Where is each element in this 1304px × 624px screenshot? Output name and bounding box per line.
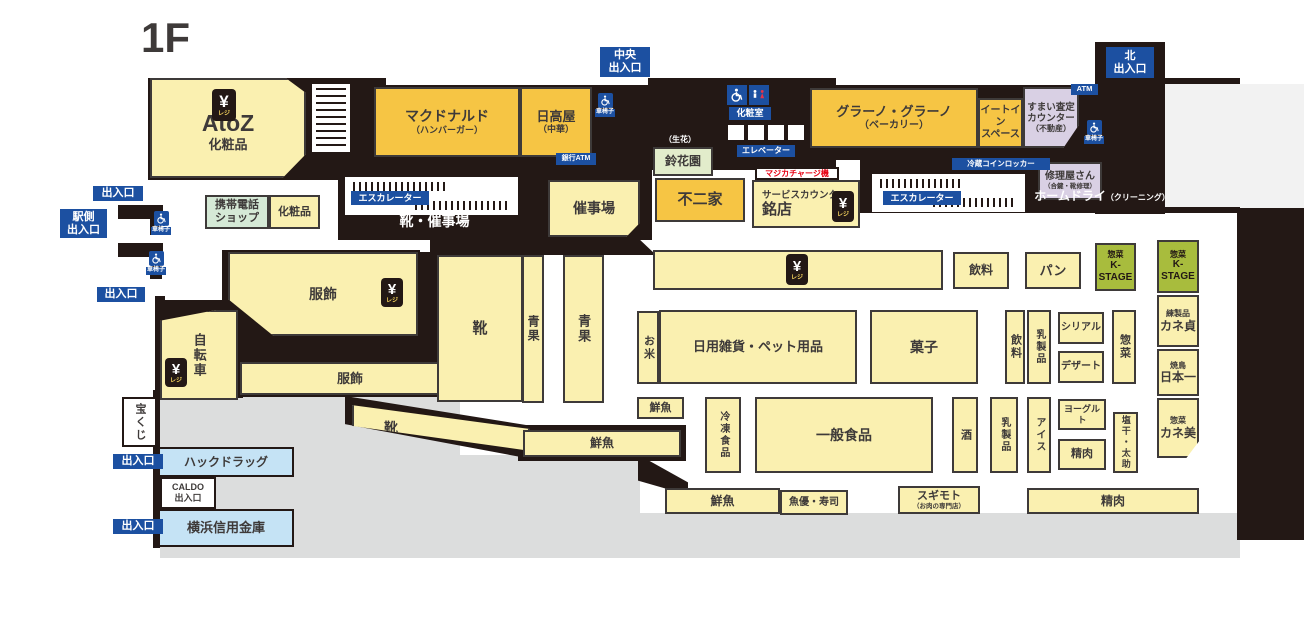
eat-in-space: イートイン スペース [978,98,1023,148]
exit-central: 中央 出入口 [600,47,650,77]
shop-sugimoto-label: スギモト [917,490,961,503]
exit-west-4-label: 出入口 [122,520,155,533]
dept-sengyo-small-label: 鮮魚 [650,402,672,415]
dept-seika-2: 青果 [563,255,604,403]
exit-north: 北 出入口 [1106,47,1154,78]
dept-kashi: 菓子 [870,310,978,384]
shop-kstage-small-label: K-STAGE [1097,260,1134,284]
dept-zakka-pet: 日用雑貨・ペット用品 [659,310,857,384]
dept-ippan-foods: 一般食品 [755,397,933,473]
shop-hac-drug-label: ハックドラッグ [184,455,268,469]
dept-frozen: 冷凍食品 [705,397,741,473]
restroom-label: 化粧室 [729,107,771,120]
dept-sake: 酒 [952,397,978,473]
shop-nihonichi: 焼鳥日本一 [1157,349,1199,396]
dept-ice: アイス [1027,397,1051,473]
atm-label: ATM [1071,84,1098,95]
wheelchair-icon: 車椅子 [1082,120,1106,144]
dept-sozai-v-label: 惣菜 [1118,334,1131,360]
floor-map-1f: 1F 車椅子 [0,0,1304,624]
restroom-icons [727,85,769,105]
seika-note-label: （生花） [664,135,696,144]
dept-cosmetics: 化粧品 [269,195,320,229]
exit-station-side-label: 駅側 出入口 [67,211,100,237]
shop-hac-drug: ハックドラッグ [158,447,294,477]
exit-west-1-label: 出入口 [102,187,135,200]
shop-suzukaen-label: 鈴花園 [665,154,701,168]
dept-drinks-2-label: 飲料 [1009,334,1022,360]
escalator-label-right-label: エスカレーター [890,193,953,204]
shop-shuriyasan-label: 修理屋さん [1045,171,1095,183]
dept-seiniku-small: 精肉 [1058,439,1106,470]
dept-dairy-2-label: 乳製品 [998,417,1010,453]
dept-bread: パン [1025,252,1081,289]
dept-fukushoku-upper-label: 服飾 [309,286,337,303]
majica-charge-label-label: マジカチャージ機 [765,169,829,178]
elevator-label-label: エレベーター [742,146,790,155]
dept-ice-label: アイス [1033,417,1045,453]
shop-suzukaen: 鈴花園 [653,147,713,176]
shop-hidakaya-sub: （中華） [538,124,574,135]
home-dry-label: ホームドライ（クリーニング） [1036,189,1168,206]
shop-kstage-small: 惣菜K-STAGE [1095,243,1136,291]
shop-yokohama-shinkin-label: 横浜信用金庫 [187,520,265,535]
shop-mcdonalds-label: マクドナルド [405,108,489,125]
event-hall-label: 催事場 [573,200,615,217]
wall-east-band [1237,208,1304,540]
majica-charge-label: マジカチャージ機 [755,167,839,180]
wheelchair-icon: 車椅子 [593,93,617,117]
wheelchair-icon: 車椅子 [149,211,173,235]
dept-fukushoku-lower: 服飾 [240,362,460,395]
shop-grano-grano-sub: （ベーカリー） [859,120,929,132]
exit-north-label: 北 出入口 [1114,50,1147,76]
exit-central-label: 中央 出入口 [609,49,642,75]
escalator-label-right: エスカレーター [883,191,961,205]
dept-drinks-2: 飲料 [1005,310,1025,384]
dept-sozai-v: 惣菜 [1112,310,1136,384]
wall-top-strip [430,240,656,255]
shop-fujiya-label: 不二家 [677,191,722,209]
service-counter-label: 銘店 [762,201,792,219]
dept-sengyo-small: 鮮魚 [637,397,684,419]
dept-okome: お米 [637,311,659,384]
takarakuji: 宝くじ [122,397,157,447]
accessible-toilet-icon [727,85,747,105]
exit-station-side: 駅側 出入口 [60,209,107,238]
wheelchair-icon: 車椅子 [144,251,168,275]
dept-drinks-1: 飲料 [953,252,1009,289]
shop-kstage-column-label: K-STAGE [1159,259,1197,283]
exit-west-4: 出入口 [113,519,163,534]
event-hall: 催事場 [548,180,640,237]
dept-ippan-foods-label: 一般食品 [816,427,872,444]
atm-label-label: ATM [1077,85,1093,94]
dept-okome-label: お米 [642,335,655,361]
caldo-exit-label: CALDO 出入口 [172,482,204,503]
shoes-event-hall-label-label: 靴・催事場 [400,213,470,230]
shop-grano-grano-label: グラーノ・グラーノ [836,104,951,119]
shop-sugimoto-sub: （お肉の専門店） [913,503,965,511]
dept-fukushoku-lower-label: 服飾 [337,371,363,386]
home-dry-label-label: ホームドライ [1034,189,1106,203]
shop-uoyu-sushi: 魚優・寿司 [780,490,848,515]
shop-sugimoto: スギモト（お肉の専門店） [898,486,980,514]
exit-west-1: 出入口 [93,186,143,201]
dept-dairy-1: 乳製品 [1027,310,1051,384]
dept-bread-label: パン [1040,263,1067,278]
dept-drinks-1-label: 飲料 [969,263,993,277]
shop-mobile-phone-label: 携帯電話 ショップ [215,199,259,225]
dept-kashi-label: 菓子 [910,339,938,356]
shop-kstage-column-small: 惣菜 [1170,250,1186,259]
shop-fujiya: 不二家 [655,178,745,222]
shop-nihonichi-label: 日本一 [1160,370,1196,384]
register-icon: ¥ レジ [381,278,403,307]
shop-yokohama-shinkin: 横浜信用金庫 [158,509,294,547]
shop-kanesada: 練製品カネ貞 [1157,295,1199,347]
exit-west-2-label: 出入口 [105,288,138,301]
escalator-label-left-label: エスカレーター [358,193,421,204]
takarakuji-label: 宝くじ [133,403,146,442]
dept-seika-2-label: 青果 [576,314,591,344]
dept-seika-1-label: 青果 [526,315,540,343]
register-icon: ¥ レジ [832,191,854,222]
dept-seiniku-small-label: 精肉 [1071,448,1093,461]
wall-east-thin [1162,207,1240,213]
floor-title: 1F [141,14,190,62]
shop-kstage-column: 惣菜K-STAGE [1157,240,1199,293]
dept-sengyo-strip2: 鮮魚 [665,488,780,514]
sumai-satei-counter-sub: （不動産） [1031,124,1071,133]
dept-shoes-main: 靴 [437,255,523,402]
shop-kanemi-label: カネ美 [1160,426,1196,440]
shop-hidakaya: 日高屋（中華） [520,87,592,157]
exit-west-3-label: 出入口 [122,455,155,468]
shop-nihonichi-small: 焼鳥 [1170,361,1186,370]
dept-dessert: デザート [1058,351,1104,383]
shoes-event-hall-label: 靴・催事場 [372,212,497,230]
dept-frozen-label: 冷凍食品 [717,411,729,459]
dept-shoes-main-label: 靴 [472,320,487,338]
dept-bicycle-label: 自転車 [191,333,206,378]
exterior-northeast [1165,84,1304,208]
bank-atm-label: 銀行ATM [556,153,596,165]
dept-sengyo-strip1-label: 鮮魚 [590,436,614,450]
stairs-icon [312,84,350,152]
shop-kanesada-small: 練製品 [1166,309,1190,318]
register-icon: ¥ レジ [786,254,808,285]
dept-cereal-label: シリアル [1061,322,1101,334]
shop-hidakaya-label: 日高屋 [536,109,575,124]
seika-note: （生花） [658,134,702,145]
dept-dairy-1-label: 乳製品 [1033,329,1045,365]
sumai-satei-counter-label: すまい査定 カウンター [1027,102,1075,124]
dept-seika-1: 青果 [522,255,544,403]
home-dry-label-sub: （クリーニング） [1106,193,1170,202]
elevator-label: エレベーター [737,145,795,157]
shop-kstage-small-small: 惣菜 [1108,250,1124,259]
elevator-icon [728,125,804,140]
dept-zakka-pet-label: 日用雑貨・ペット用品 [693,339,823,354]
dept-seiniku-strip: 精肉 [1027,488,1199,514]
exit-west-3: 出入口 [113,454,163,469]
register-icon: ¥ レジ [165,358,187,387]
eat-in-space-label: イートイン スペース [980,105,1021,140]
dept-sengyo-strip2-label: 鮮魚 [710,494,734,508]
dept-dessert-label: デザート [1061,361,1101,373]
dept-shioboshi-label: 塩干・太助 [1120,415,1131,470]
exit-west-2: 出入口 [97,287,145,302]
shop-kanemi: 惣菜カネ美 [1157,398,1199,458]
coin-locker-label-label: 冷蔵コインロッカー [967,160,1035,169]
mens-womens-toilet-icon [749,85,769,105]
shop-mcdonalds: マクドナルド（ハンバーガー） [374,87,520,157]
dept-seiniku-strip-label: 精肉 [1101,494,1125,508]
shop-mcdonalds-sub: （ハンバーガー） [411,125,483,136]
shop-kanesada-label: カネ貞 [1160,319,1196,333]
dept-cosmetics-label: 化粧品 [278,206,311,219]
bank-atm-label-label: 銀行ATM [562,155,591,163]
dept-yogurt: ヨーグルト [1058,399,1106,430]
dept-cereal: シリアル [1058,312,1104,344]
dept-dairy-2: 乳製品 [990,397,1018,473]
dept-sengyo-strip1: 鮮魚 [523,430,681,457]
register-icon: ¥ レジ [212,89,236,121]
coin-locker-label: 冷蔵コインロッカー [952,158,1050,170]
dept-shioboshi: 塩干・太助 [1113,412,1138,473]
wall-north-thin [1160,78,1240,84]
shop-grano-grano: グラーノ・グラーノ（ベーカリー） [810,88,978,148]
caldo-exit: CALDO 出入口 [160,477,216,509]
restroom-label-label: 化粧室 [736,108,763,119]
escalator-label-left: エスカレーター [351,191,429,205]
shop-atoz-sub: 化粧品 [208,137,247,152]
shop-uoyu-sushi-label: 魚優・寿司 [789,497,839,509]
dept-yogurt-label: ヨーグルト [1060,404,1104,425]
shop-kanemi-small: 惣菜 [1170,416,1186,425]
shop-mobile-phone: 携帯電話 ショップ [205,195,269,229]
dept-sake-label: 酒 [959,429,972,442]
